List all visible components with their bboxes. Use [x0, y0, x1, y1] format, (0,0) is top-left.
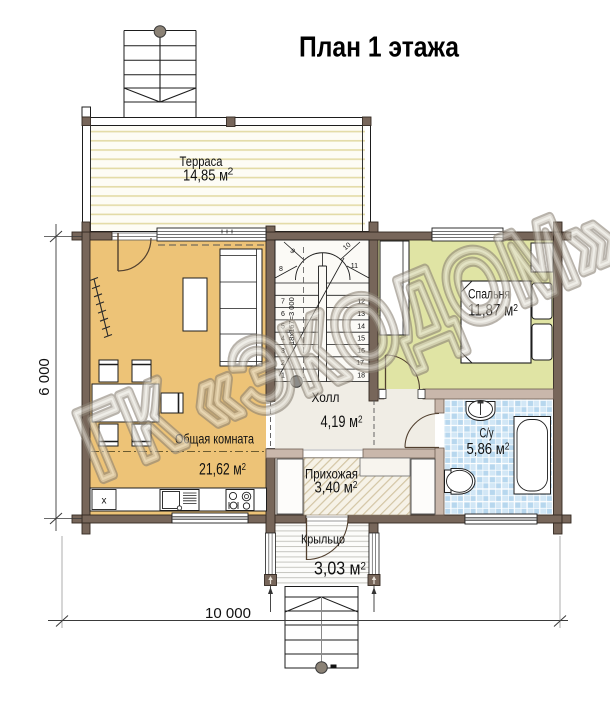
- svg-text:8: 8: [279, 266, 283, 273]
- svg-text:3,40 м2: 3,40 м2: [315, 479, 358, 496]
- svg-text:21,62 м2: 21,62 м2: [199, 461, 246, 479]
- svg-text:11: 11: [351, 263, 358, 270]
- svg-text:14,85 м: 14,85 м: [183, 168, 228, 185]
- svg-text:4,19 м2: 4,19 м2: [321, 413, 363, 431]
- svg-text:5,86 м2: 5,86 м2: [467, 441, 510, 458]
- svg-text:2: 2: [228, 166, 234, 178]
- svg-text:10 000: 10 000: [205, 605, 251, 622]
- svg-text:3,03 м2: 3,03 м2: [314, 559, 366, 579]
- svg-text:План 1 этажа: План 1 этажа: [299, 32, 460, 64]
- svg-text:С/у: С/у: [480, 426, 494, 441]
- svg-text:6 000: 6 000: [36, 358, 53, 396]
- svg-text:Крыльцо: Крыльцо: [301, 532, 345, 547]
